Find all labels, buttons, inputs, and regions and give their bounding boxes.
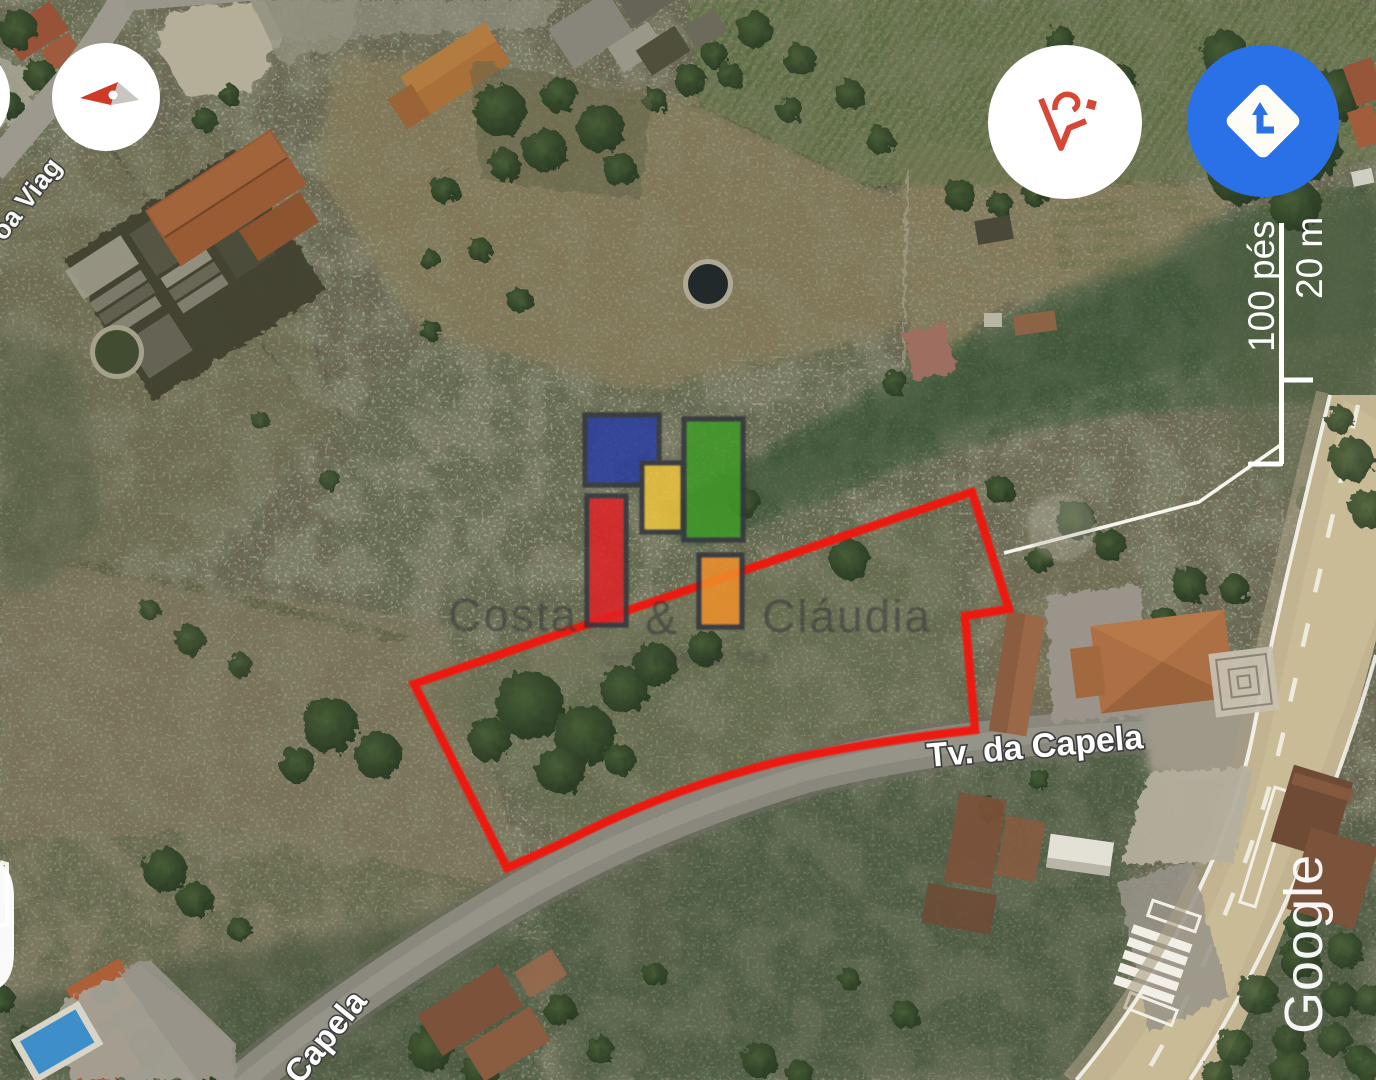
svg-text:unipessoal lda: unipessoal lda xyxy=(602,645,771,670)
svg-text:Cláudia: Cláudia xyxy=(762,590,932,642)
svg-text:Costa: Costa xyxy=(448,589,578,641)
svg-text:&: & xyxy=(645,592,677,645)
svg-text:20 m: 20 m xyxy=(1289,217,1330,299)
svg-text:100 pés: 100 pés xyxy=(1241,220,1282,352)
svg-text:Google: Google xyxy=(1274,854,1334,1034)
